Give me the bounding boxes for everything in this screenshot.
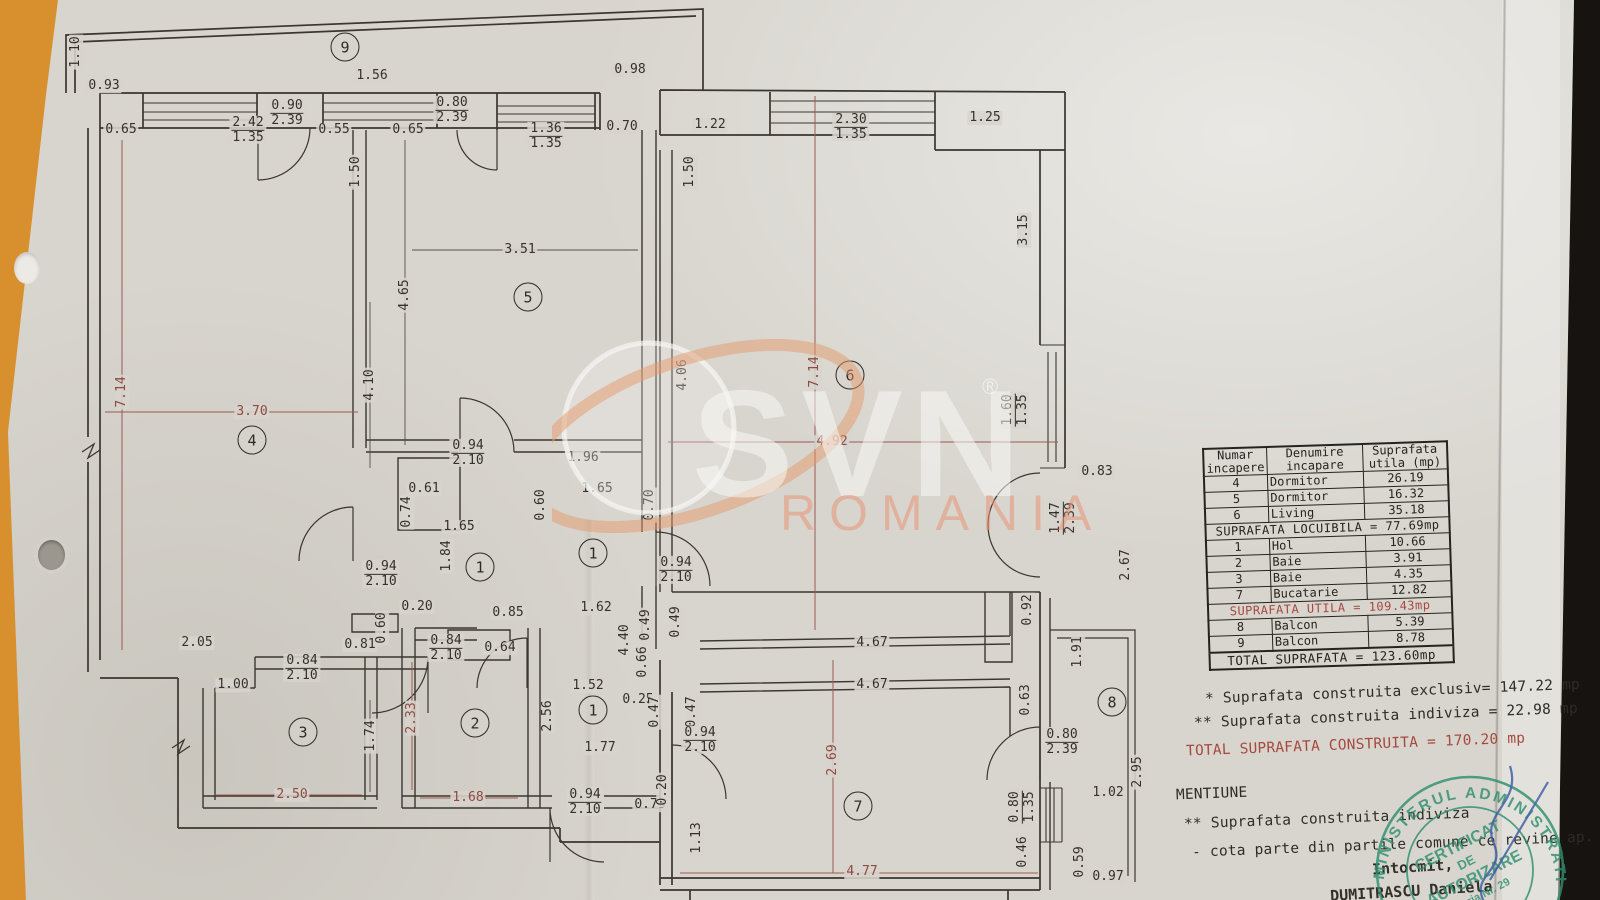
dimension-label: 1.65 xyxy=(579,482,614,496)
dimension-label: 4.67 xyxy=(854,678,889,692)
dimension-label: 1.91 xyxy=(1071,634,1085,669)
dimension-label: 0.65 xyxy=(390,123,425,137)
dimension-label: 0.47 xyxy=(648,694,662,729)
dimension-label: 0.942.10 xyxy=(681,726,718,754)
dimension-label: 1.68 xyxy=(450,791,485,805)
dimension-label: 0.942.10 xyxy=(566,788,603,816)
dimension-label: 2.67 xyxy=(1119,547,1133,582)
dimension-label: 4.40 xyxy=(618,622,632,657)
dimension-label: 0.842.10 xyxy=(427,634,464,662)
room-number-circle: 1 xyxy=(579,539,608,568)
dimension-label: 0.942.10 xyxy=(362,560,399,588)
dimension-label: 0.97 xyxy=(1090,870,1125,884)
dimension-label: 0.60 xyxy=(534,487,548,522)
dimension-label: 0.842.10 xyxy=(283,654,320,682)
dimension-label: 1.02 xyxy=(1090,786,1125,800)
dimension-label: 0.83 xyxy=(1079,465,1114,479)
certification-stamp: MINISTERUL ADMINISTRATIEI CERTIFICAT DE … xyxy=(1352,752,1587,900)
note-mentiune-title: MENTIUNE xyxy=(1176,785,1248,804)
room-number-circle: 3 xyxy=(289,718,318,747)
dimension-label: 2.95 xyxy=(1131,754,1145,789)
dimension-label: 1.00 xyxy=(215,678,250,692)
room-number-circle: 2 xyxy=(461,709,490,738)
dimension-label: 0.70 xyxy=(643,487,657,522)
dimension-label: 0.64 xyxy=(482,641,517,655)
dimension-label: 0.70 xyxy=(604,120,639,134)
dimension-label: 1.22 xyxy=(692,118,727,132)
dimension-label: 2.56 xyxy=(541,698,555,733)
dimension-label: 1.50 xyxy=(349,154,363,189)
dimension-label: 0.93 xyxy=(86,79,121,93)
dimension-label: 4.92 xyxy=(814,435,849,449)
dimension-label: 4.67 xyxy=(854,636,889,650)
room-number-circle: 8 xyxy=(1098,688,1127,717)
dimension-label: 0.902.39 xyxy=(268,99,305,127)
dimension-label: 0.20 xyxy=(399,600,434,614)
dimension-label: 0.63 xyxy=(1019,682,1033,717)
dimension-label: 3.70 xyxy=(234,405,269,419)
dimension-label: 3.51 xyxy=(502,243,537,257)
dimension-label: 0.49 xyxy=(669,604,683,639)
dimension-label: 1.77 xyxy=(582,741,617,755)
scanned-floor-plan-photo: 1.100.931.560.902.390.802.390.980.652.42… xyxy=(0,0,1600,900)
dimension-label: 0.60 xyxy=(375,610,389,645)
dimension-label: 2.33 xyxy=(405,700,419,735)
dimension-label: 0.66 xyxy=(636,644,650,679)
dimension-label: 1.65 xyxy=(441,520,476,534)
dimension-label: 0.59 xyxy=(1073,844,1087,879)
dimension-label: 2.301.35 xyxy=(832,113,869,141)
dimension-label: 1.84 xyxy=(440,538,454,573)
header-numar-incapere: Numar incapere xyxy=(1203,447,1267,477)
dimension-label: 1.50 xyxy=(683,154,697,189)
dimension-label: 0.802.39 xyxy=(1043,728,1080,756)
room-number-circle: 4 xyxy=(238,426,267,455)
dimension-label: 2.50 xyxy=(274,788,309,802)
dimension-label: 0.802.39 xyxy=(433,96,470,124)
dimension-label: 1.62 xyxy=(578,601,613,615)
dimension-label: 3.15 xyxy=(1017,212,1031,247)
dimension-label: 4.77 xyxy=(844,865,879,879)
header-suprafata-utila: Suprafata utila (mp) xyxy=(1362,441,1447,472)
dimension-label: 7.14 xyxy=(808,354,822,389)
dimension-label: 0.65 xyxy=(103,123,138,137)
dimension-label: 1.52 xyxy=(570,679,605,693)
room-number-circle: 5 xyxy=(514,283,543,312)
dimension-label: 0.942.10 xyxy=(449,439,486,467)
dimension-label: 1.472.39 xyxy=(1049,499,1077,536)
dimension-label: 1.25 xyxy=(967,111,1002,125)
dimension-label: 4.65 xyxy=(398,277,412,312)
dimension-label: 0.46 xyxy=(1016,834,1030,869)
dimension-label: 1.96 xyxy=(565,451,600,465)
dimension-label: 1.10 xyxy=(69,34,83,69)
dimension-label: 1.361.35 xyxy=(527,122,564,150)
dimension-label: 0.942.10 xyxy=(657,556,694,584)
dimension-label: 4.10 xyxy=(363,367,377,402)
dimension-label: 2.421.35 xyxy=(229,116,266,144)
dimension-label: 0.81 xyxy=(342,638,377,652)
dimension-label: 0.801.35 xyxy=(1008,788,1036,825)
dimension-label: 7.14 xyxy=(115,374,129,409)
dimension-label: 1.13 xyxy=(690,820,704,855)
dimension-label: 2.05 xyxy=(179,636,214,650)
dimension-label: 0.20 xyxy=(656,772,670,807)
room-number-circle: 6 xyxy=(836,361,865,390)
dimension-label: 1.74 xyxy=(364,718,378,753)
dimension-label: 0.49 xyxy=(639,607,653,642)
dimension-label: 0.85 xyxy=(490,606,525,620)
room-number-circle: 9 xyxy=(331,33,360,62)
room-number-circle: 1 xyxy=(579,696,608,725)
room-number-circle: 1 xyxy=(466,553,495,582)
dimension-label: 0.55 xyxy=(316,123,351,137)
dimension-label: 0.98 xyxy=(612,63,647,77)
dimension-label: 1.601.35 xyxy=(1001,391,1029,428)
room-number-circle: 7 xyxy=(844,792,873,821)
dimension-label: 1.56 xyxy=(354,69,389,83)
room-areas-table: Numar incapere Denumire incapare Suprafa… xyxy=(1202,440,1455,671)
dimension-label: 0.74 xyxy=(400,494,414,529)
dimension-label: 0.92 xyxy=(1021,592,1035,627)
header-denumire-incapare: Denumire incapare xyxy=(1266,444,1363,475)
dimension-label: 2.69 xyxy=(826,742,840,777)
dimension-label: 4.06 xyxy=(676,357,690,392)
